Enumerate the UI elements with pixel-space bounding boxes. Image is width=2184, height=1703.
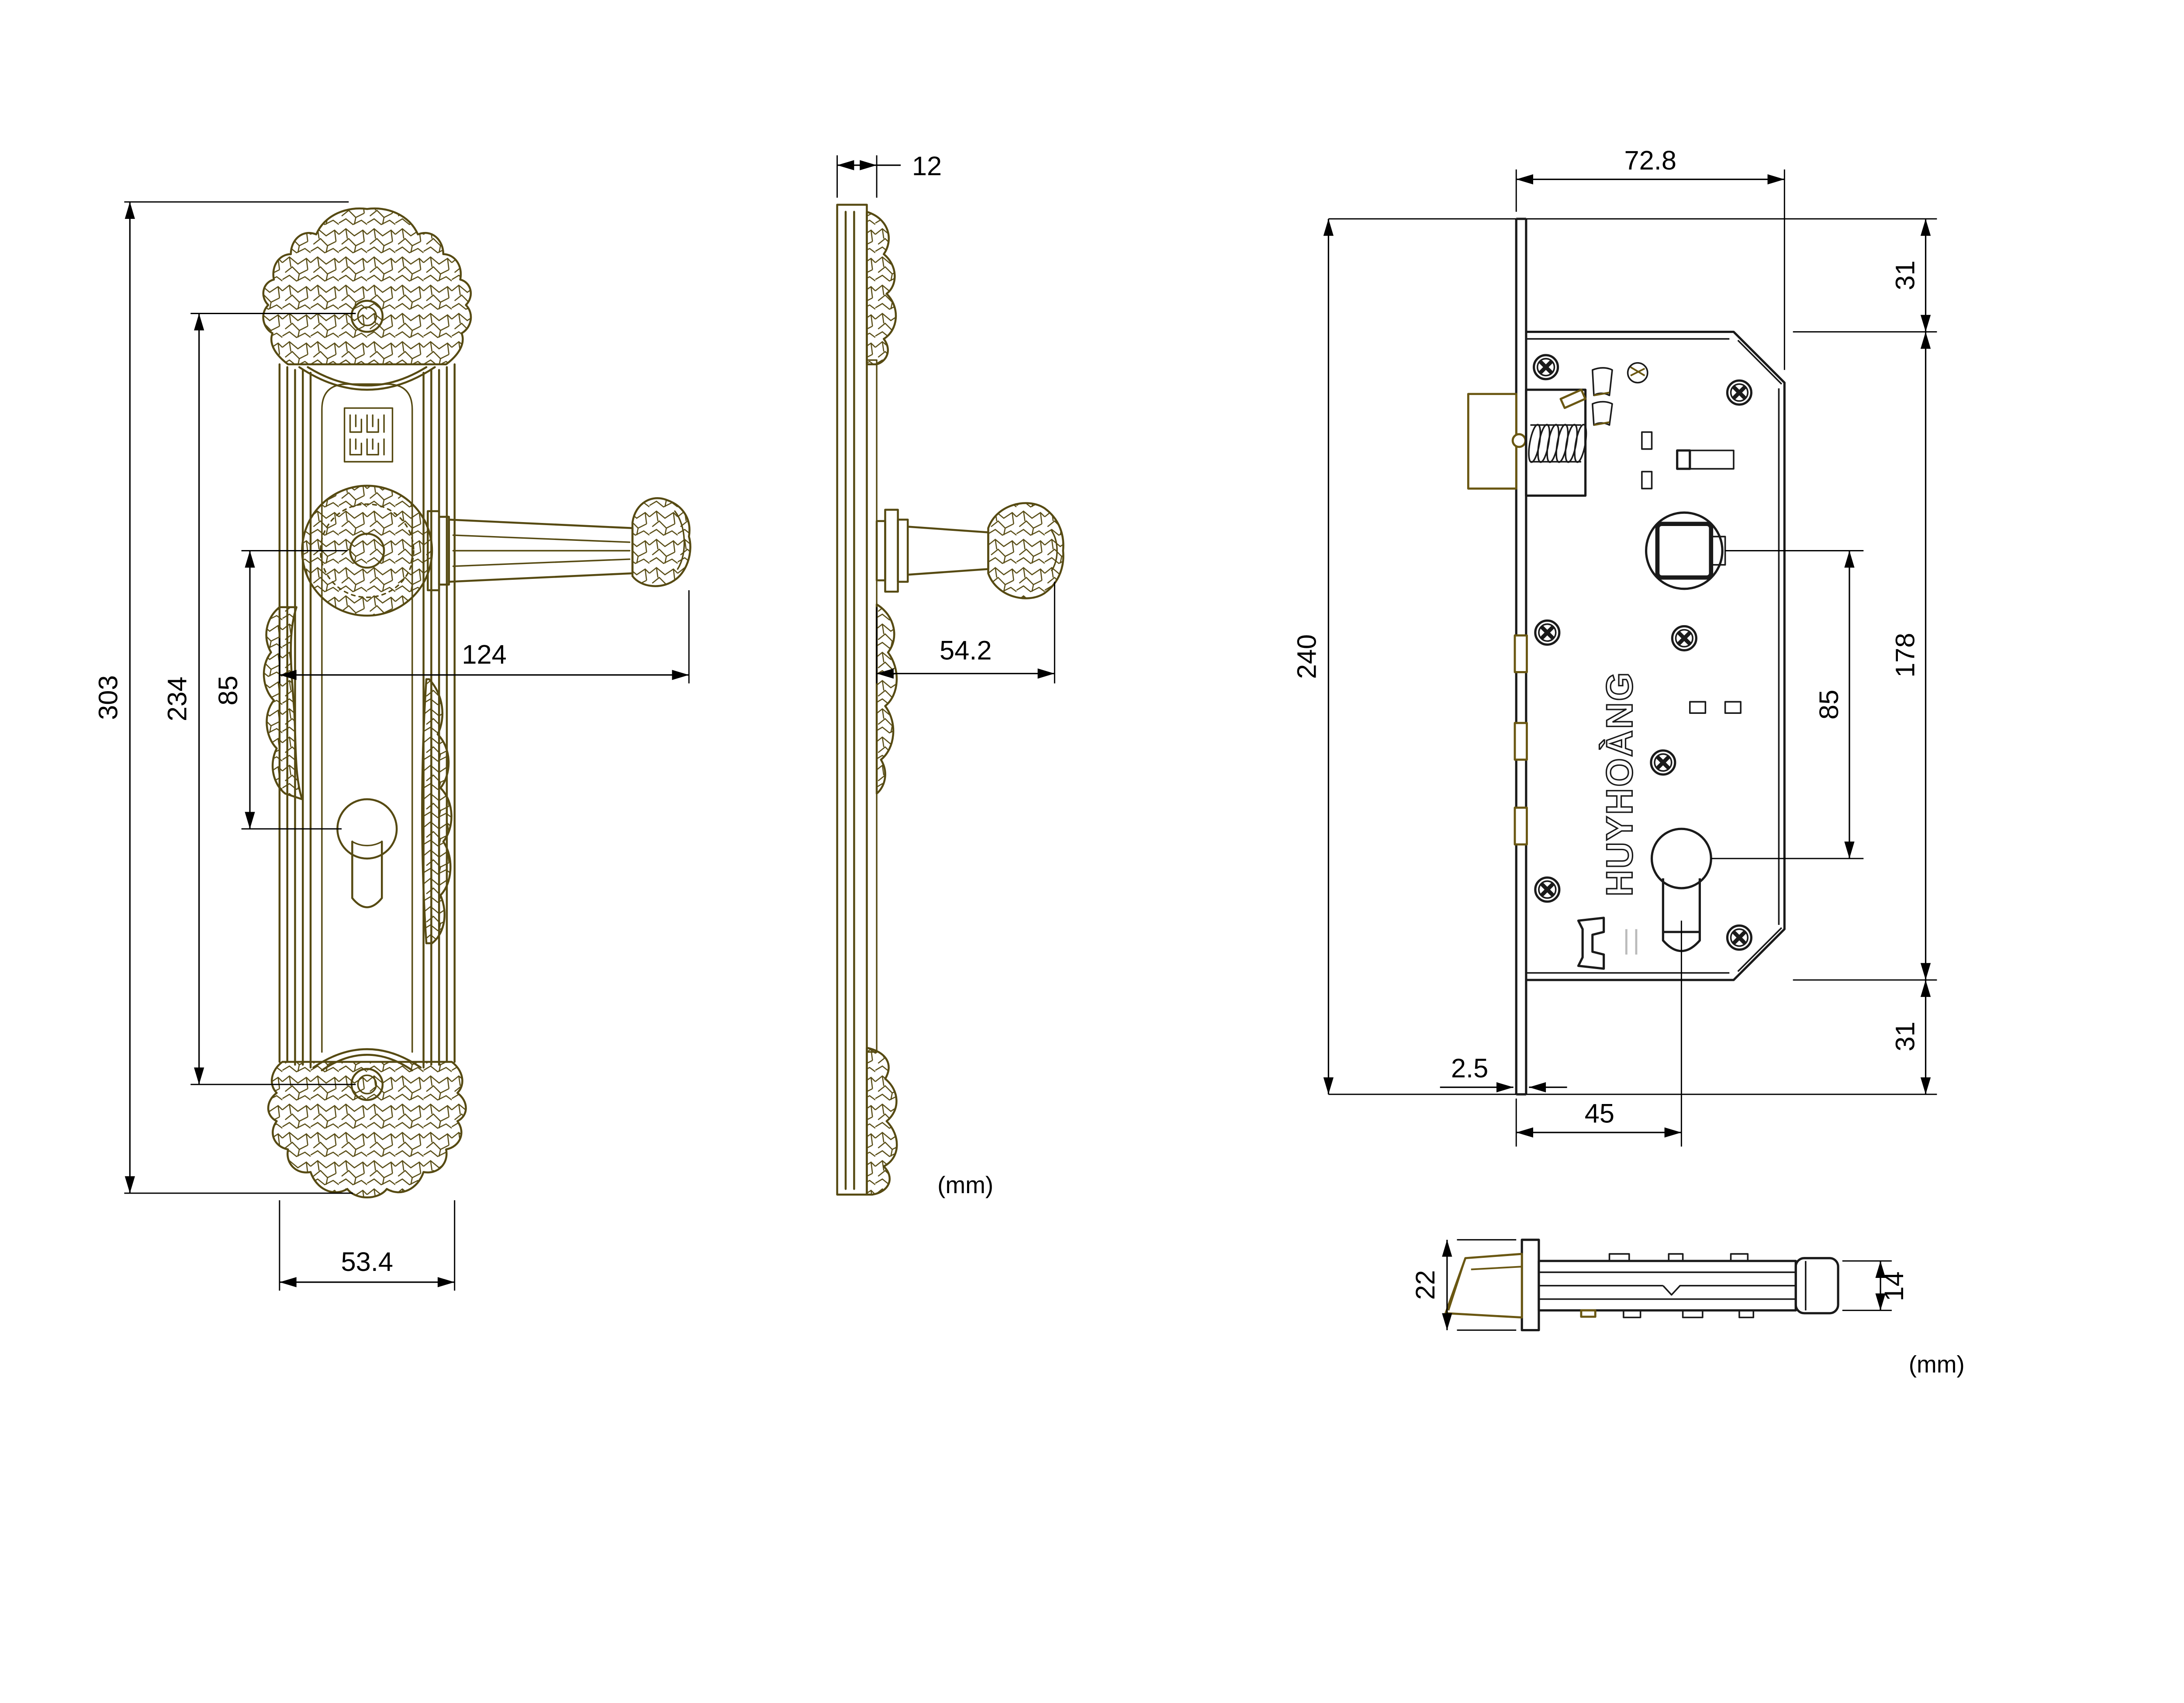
dim-plate-screw-centers: 234 xyxy=(162,677,193,721)
handle-side-profile xyxy=(877,503,1063,599)
latch-bolt-side-view: 22 14 (mm) xyxy=(1410,1240,1965,1378)
dim-spindle-to-cylinder: 85 xyxy=(1814,690,1844,720)
plate-top-ornament xyxy=(263,208,471,364)
handle-lever xyxy=(428,498,690,590)
brand-lock-text: HUYHOÀNG xyxy=(1599,671,1640,896)
latch-faceplate-bar xyxy=(1522,1240,1539,1330)
slide-bar-head xyxy=(1677,450,1690,469)
lock-dimensions: 72.8 240 31 178 31 85 2.5 45 xyxy=(1292,145,1937,1147)
deadbolt-tab-3 xyxy=(1515,808,1527,845)
slot-a xyxy=(1690,702,1706,713)
slide-bar xyxy=(1690,450,1734,469)
plate-keyhole xyxy=(337,799,397,907)
knob-side xyxy=(988,503,1063,599)
dim-latch-faceplate-width: 22 xyxy=(1410,1270,1441,1300)
dim-latch-bolt-height: 14 xyxy=(1879,1271,1909,1301)
plate-bottom-ornament xyxy=(268,1062,466,1198)
dim-handle-projection: 54.2 xyxy=(940,635,992,665)
units-note-center: (mm) xyxy=(937,1171,993,1198)
plate-inner-panel xyxy=(322,384,412,1052)
lock-body-view: HUYHOÀNG xyxy=(1468,219,1784,1094)
lever-end-ornament xyxy=(632,498,691,586)
latch-cam-tab xyxy=(1561,390,1585,408)
latch-bolt-body xyxy=(1539,1254,1838,1317)
brand-seal xyxy=(345,408,393,462)
dim-plate-thickness: 12 xyxy=(912,151,942,181)
latch-bolt xyxy=(1468,394,1516,489)
spindle-follower xyxy=(1646,512,1725,589)
slot-b xyxy=(1725,702,1741,713)
dim-backset: 45 xyxy=(1585,1098,1614,1128)
lock-case xyxy=(1526,332,1784,980)
stop-bracket xyxy=(1578,918,1603,969)
drawing-sheet: 303 234 85 124 53.4 12 54.2 (mm) xyxy=(0,0,2184,1442)
side-top-ornament xyxy=(867,212,895,364)
dim-plate-total-height: 303 xyxy=(93,675,123,720)
dim-case-width: 72.8 xyxy=(1624,145,1676,176)
dim-handle-to-keyhole: 85 xyxy=(213,675,243,705)
dim-faceplate-thickness: 2.5 xyxy=(1451,1053,1488,1083)
handle-plate-side-view xyxy=(837,205,1064,1195)
latch-pin xyxy=(1513,434,1525,447)
handle-plate-front-view xyxy=(263,208,691,1198)
internal-lever-piece xyxy=(1593,368,1612,395)
plate-side-ridge xyxy=(867,360,877,1052)
units-note-corner: (mm) xyxy=(1909,1351,1965,1378)
dim-case-height: 178 xyxy=(1890,633,1921,677)
deadbolt-tab-1 xyxy=(1515,635,1527,672)
dim-plate-width: 53.4 xyxy=(341,1247,393,1277)
internal-slot-upper xyxy=(1642,432,1652,449)
deadbolt-tab-2 xyxy=(1515,723,1527,760)
plate-left-ornament xyxy=(264,607,302,800)
dim-handle-length: 124 xyxy=(462,640,506,670)
side-middle-ornament xyxy=(877,604,897,793)
dim-faceplate-height: 240 xyxy=(1292,634,1322,679)
side-bottom-ornament xyxy=(867,1048,897,1194)
technical-drawing: 303 234 85 124 53.4 12 54.2 (mm) xyxy=(0,0,2184,1442)
internal-slot-lower xyxy=(1642,472,1652,489)
dim-top-margin: 31 xyxy=(1890,260,1921,290)
dim-bottom-margin: 31 xyxy=(1890,1021,1921,1051)
latch-spring xyxy=(1527,424,1589,463)
